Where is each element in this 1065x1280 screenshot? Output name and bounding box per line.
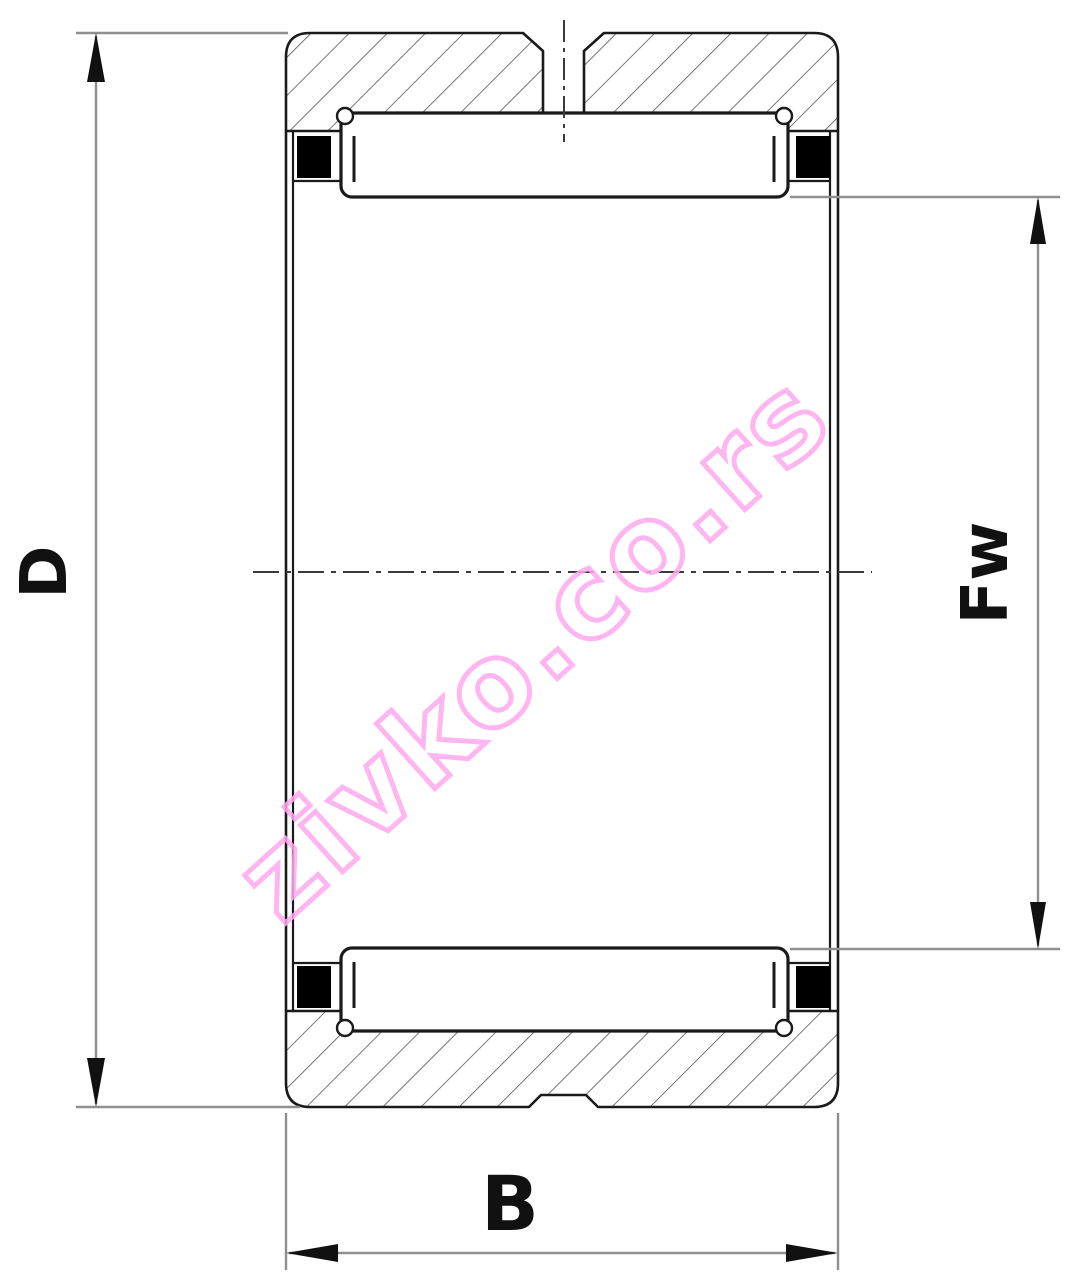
needle-roller-bottom [341,948,788,1031]
label-fw: Fw [949,522,1023,625]
seal-top-right [796,136,830,178]
seal-bottom-right [796,966,830,1008]
watermark-text: zivko.co.rs [211,347,857,947]
dim-d-arrow-down [87,1058,105,1107]
dim-fw-arrow-down [1030,902,1046,949]
cage-pin-top-left [337,108,353,124]
cage-pin-top-right [776,108,792,124]
label-b: B [481,1159,539,1248]
label-d: D [8,545,82,598]
dim-d-arrow-up [87,33,105,82]
dim-b-arrow-right [786,1244,838,1262]
cage-pin-bottom-right [776,1020,792,1036]
seal-top-left [297,136,331,178]
cage-pin-bottom-left [337,1020,353,1036]
technical-drawing-page: { "drawing": { "type": "needle-roller-be… [0,0,1065,1280]
seal-bottom-left [297,966,331,1008]
dim-fw-arrow-up [1030,197,1046,244]
bearing-drawing-svg: D Fw B zivko.co.rs [0,0,1065,1280]
dim-b-arrow-left [286,1244,338,1262]
